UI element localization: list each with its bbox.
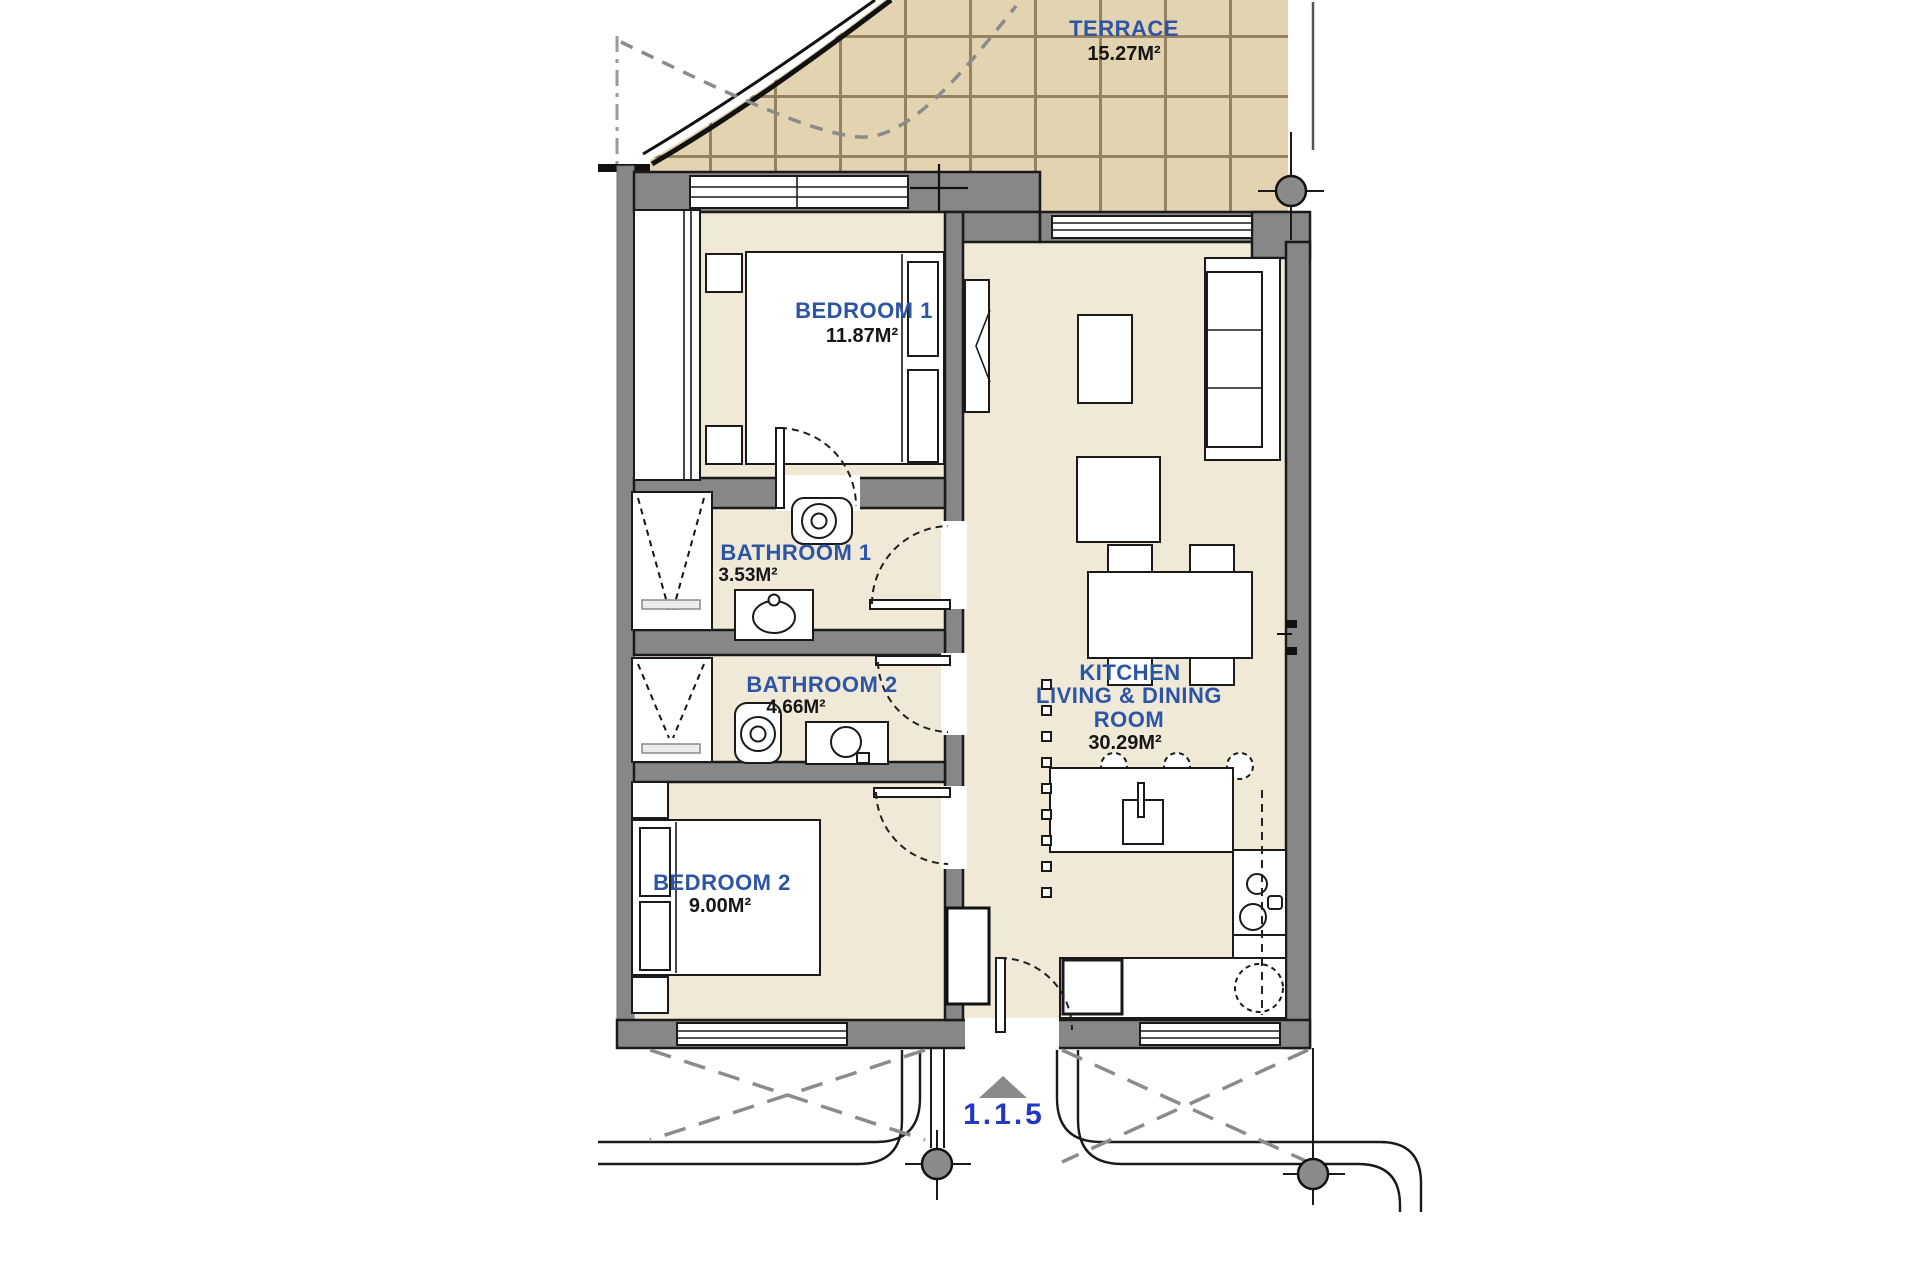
floor-plan-page: TERRACE BEDROOM 1 BATHROOM 1 BATHROOM 2 … xyxy=(0,0,1920,1280)
appliance-washer xyxy=(1063,960,1122,1014)
nightstand xyxy=(706,426,742,464)
unit-number: 1.1.5 xyxy=(963,1098,1045,1131)
dashed-square-mark xyxy=(1042,810,1051,819)
bathroom2-door-leaf xyxy=(876,656,950,665)
dashed-square-mark xyxy=(1042,758,1051,767)
bedroom2-door-opening xyxy=(941,786,967,869)
wardrobe xyxy=(634,210,700,480)
column-marker xyxy=(1298,1159,1328,1189)
tv-cabinet xyxy=(965,280,989,412)
kitchen-label-line1: KITCHEN xyxy=(1079,660,1180,685)
washbasin-faucet xyxy=(769,595,780,606)
window-bedroom2 xyxy=(677,1023,847,1045)
shower-drain xyxy=(642,744,700,753)
void-dashed-squares xyxy=(1042,680,1051,897)
column-marker xyxy=(922,1149,952,1179)
bedroom2-door-leaf xyxy=(874,788,950,797)
terrace-area: 15.27M² xyxy=(1087,43,1161,65)
coffee-table xyxy=(1078,315,1132,403)
dashed-square-mark xyxy=(1042,836,1051,845)
bedroom1-door-leaf xyxy=(776,428,784,508)
bathroom1-label: BATHROOM 1 xyxy=(720,540,871,565)
dashed-square-mark xyxy=(1042,732,1051,741)
kitchen-label-line3: ROOM xyxy=(1094,707,1164,732)
bedroom1-label: BEDROOM 1 xyxy=(795,298,933,323)
unit-number-label: 1.1.5 xyxy=(963,1098,1045,1131)
bathroom1-door-leaf xyxy=(870,600,950,609)
bedroom2-area: 9.00M² xyxy=(689,895,752,917)
round-sink xyxy=(1235,964,1283,1012)
tall-cabinet xyxy=(947,908,989,1004)
wall-top-connector xyxy=(963,212,1040,242)
nightstand xyxy=(632,782,668,818)
cooktop-burner xyxy=(1247,874,1267,894)
washbasin-faucet xyxy=(857,753,869,763)
window-living xyxy=(1052,216,1252,238)
dashed-square-mark xyxy=(1042,862,1051,871)
bathroom2-label: BATHROOM 2 xyxy=(746,672,897,697)
toilet-bowl-center xyxy=(812,514,827,529)
wall-connection-stub xyxy=(1286,620,1297,628)
window-kitchen xyxy=(1140,1023,1280,1045)
dashed-square-mark xyxy=(1042,888,1051,897)
wall-connection-stub xyxy=(1286,647,1297,655)
window-bedroom1 xyxy=(690,176,908,208)
pillow xyxy=(640,902,670,970)
toilet-bowl-center xyxy=(751,727,766,742)
kitchen-area: 30.29M² xyxy=(1088,732,1162,754)
dashed-square-mark xyxy=(1042,784,1051,793)
side-table xyxy=(1077,457,1160,542)
floor-plan-drawing: TERRACE BEDROOM 1 BATHROOM 1 BATHROOM 2 … xyxy=(0,0,1920,1280)
entrance-door-leaf xyxy=(996,958,1005,1032)
bedroom2-label: BEDROOM 2 xyxy=(653,870,791,895)
bathroom2-area: 4.66M² xyxy=(766,697,825,718)
nightstand xyxy=(632,977,668,1013)
dining-table xyxy=(1088,572,1252,658)
sofa-cushions xyxy=(1207,272,1262,447)
nightstand xyxy=(706,254,742,292)
kitchen-label-line2: LIVING & DINING xyxy=(1036,683,1222,708)
shower-drain xyxy=(642,600,700,609)
column-marker xyxy=(1276,176,1306,206)
entrance-door-opening xyxy=(965,1018,1059,1050)
wall-bathroom2-bedroom2 xyxy=(634,762,945,782)
island-faucet xyxy=(1138,783,1144,817)
bathroom1-area: 3.53M² xyxy=(718,565,777,586)
cooktop-knob xyxy=(1268,896,1282,909)
pillow xyxy=(908,370,938,462)
terrace-label: TERRACE xyxy=(1069,16,1179,41)
bathroom1-door-opening xyxy=(941,521,967,609)
bedroom1-area: 11.87M² xyxy=(826,325,899,347)
wall-right xyxy=(1286,242,1310,1048)
wall-partition-vertical xyxy=(945,212,963,1020)
